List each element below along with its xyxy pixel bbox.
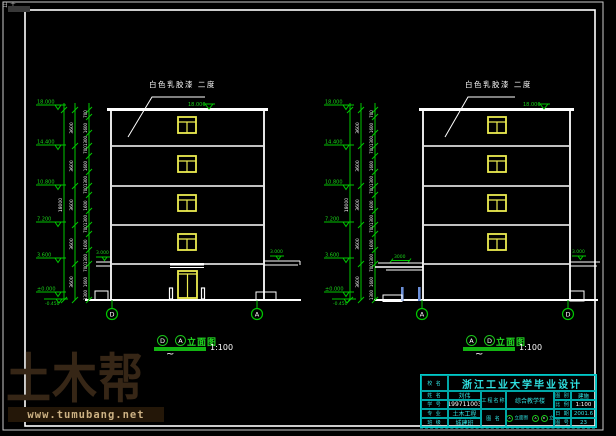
grid-letter: A <box>255 311 260 319</box>
dim-text: 1600 <box>369 200 374 211</box>
caption-right-elevation: A D 立面图 1:100 ~ <box>463 334 558 364</box>
caption-underline <box>463 347 515 351</box>
dim-text: 1300 <box>369 135 374 146</box>
level-triangle-icon <box>55 258 61 263</box>
level-triangle-icon <box>578 256 583 260</box>
paint-note-right: 白色乳胶漆 二度 <box>465 79 532 90</box>
titleblock-type-label: 图 别 <box>554 391 571 400</box>
dim-text: 1600 <box>369 160 374 171</box>
dim-text: 3600 <box>69 122 75 134</box>
annex-step <box>256 292 276 300</box>
titleblock-drawing-label: 图 名 <box>481 409 506 427</box>
dim-text: 1300 <box>83 289 88 300</box>
level-triangle-icon <box>55 105 61 110</box>
watermark-url-band: www.tumubang.net <box>8 407 164 422</box>
level-triangle-icon <box>55 222 61 227</box>
dim-text: 1300 <box>369 253 374 264</box>
grid-bubble-icon: A <box>506 415 513 422</box>
titleblock-drawing-value: D A 立面图 A D 立面图 <box>506 409 554 427</box>
dim-text: 1600 <box>369 122 374 133</box>
titleblock-school-label: 校 名 <box>421 375 448 391</box>
side-step <box>95 291 108 300</box>
titleblock-project-value: 综合教学楼 <box>506 391 554 409</box>
titleblock-id-label: 学 号 <box>421 400 448 409</box>
dim-text: 1300 <box>369 214 374 225</box>
dim-text: 1300 <box>83 214 88 225</box>
dim-text: 700 <box>369 225 374 233</box>
dim-text: 1600 <box>369 276 374 287</box>
caption-scale: 1:100 <box>210 343 233 352</box>
dim-text: 1600 <box>83 200 88 211</box>
dim-text: 700 <box>369 146 374 154</box>
titleblock-class-label: 班 级 <box>421 418 448 427</box>
level-triangle-icon <box>343 222 349 227</box>
door-post <box>202 288 205 299</box>
titleblock-date-value: 2001.6 <box>571 409 596 418</box>
dim-text: 3600 <box>69 238 75 250</box>
level-triangle-icon <box>102 257 107 261</box>
level-text: 3.000 <box>572 249 585 255</box>
dim-text: 1600 <box>83 122 88 133</box>
dim-text: 1300 <box>83 135 88 146</box>
grid-bubble-icon: D <box>541 415 548 422</box>
watermark-brand: 土木帮 <box>6 352 166 405</box>
level-triangle-icon <box>343 185 349 190</box>
titleblock-name-label: 姓 名 <box>421 391 448 400</box>
door-post <box>170 288 173 299</box>
titleblock-bottom-dashes <box>420 428 595 429</box>
dim-text: 3600 <box>355 199 361 211</box>
roof-slab <box>107 108 268 111</box>
cad-sheet: DA18.00014.40010.8007.2003.600±0.000-0.4… <box>0 0 616 436</box>
canopy-post <box>418 287 421 301</box>
titleblock-scale-value: 1:100 <box>571 400 596 409</box>
dim-text: 1300 <box>369 175 374 186</box>
dim-text: 700 <box>369 110 374 118</box>
roof-slab <box>419 108 574 111</box>
dim-text: 3600 <box>355 238 361 250</box>
titleblock-type-value: 建施 <box>571 391 596 400</box>
dim-text: 700 <box>83 186 88 194</box>
level-text: 3.000 <box>270 249 283 255</box>
level-triangle-icon <box>55 292 61 297</box>
caption-grid-bubble: A <box>466 335 477 346</box>
dim-text: 1600 <box>83 160 88 171</box>
caption-tilde: ~ <box>166 349 174 360</box>
level-triangle-icon <box>343 105 349 110</box>
titleblock-scale-label: 比 例 <box>554 400 571 409</box>
grid-letter: D <box>565 311 570 319</box>
caption-underline <box>154 347 206 351</box>
paint-note-left: 白色乳胶漆 二度 <box>149 79 216 90</box>
dim-text: 1600 <box>369 239 374 250</box>
titleblock-number-label: 图 号 <box>554 418 571 427</box>
grid-bubble-icon: A <box>532 415 539 422</box>
dim-text: 1300 <box>83 253 88 264</box>
titleblock-number-value: 23 <box>571 418 596 427</box>
caption-grid-bubble: D <box>157 335 168 346</box>
dim-text: 700 <box>83 146 88 154</box>
dim-text: 700 <box>369 186 374 194</box>
titleblock-project-label: 工程名称 <box>481 391 506 409</box>
titleblock-major-value: 土木工程 <box>448 409 481 418</box>
dim-text: 1600 <box>83 239 88 250</box>
caption-scale: 1:100 <box>519 343 542 352</box>
dim-text: 3600 <box>355 160 361 172</box>
grid-letter: D <box>109 311 114 319</box>
drawing-name-part: A D 立面图 <box>532 415 554 422</box>
dim-text: 3600 <box>355 122 361 134</box>
roof-level-text: 18.000 <box>188 102 206 108</box>
caption-tilde: ~ <box>475 349 483 360</box>
titleblock-id-value: 199711003 <box>448 400 481 409</box>
titleblock-title: 浙江工业大学毕业设计 <box>448 375 596 391</box>
dim-text: 3600 <box>355 276 361 288</box>
dim-text: 700 <box>83 225 88 233</box>
caption-grid-bubble: A <box>175 335 186 346</box>
level-text: -0.450 <box>333 301 348 307</box>
watermark: 土木帮 www.tumubang.net <box>6 352 166 397</box>
corner-smudge <box>8 6 30 12</box>
grid-letter: A <box>420 311 425 319</box>
dim-text: 700 <box>83 264 88 272</box>
level-triangle-icon <box>55 145 61 150</box>
dim-text: 1300 <box>369 289 374 300</box>
caption-left-elevation: D A 立面图 1:100 ~ <box>154 334 249 364</box>
titleblock-name-value: 刘伟 <box>448 391 481 400</box>
drawing-name-part: D A 立面图 <box>506 415 528 422</box>
dim-text: 3600 <box>69 276 75 288</box>
dim-text: 1600 <box>83 276 88 287</box>
watermark-url: www.tumubang.net <box>27 409 144 421</box>
dim-text: 1300 <box>83 175 88 186</box>
dim-text: 700 <box>369 264 374 272</box>
dim-text: 18000 <box>344 198 350 212</box>
title-block: 校 名 浙江工业大学毕业设计 姓 名 刘伟 学 号 199711003 专 业 … <box>420 374 597 428</box>
titleblock-class-value: 城建班 <box>448 418 481 427</box>
level-triangle-icon <box>343 258 349 263</box>
level-text: -0.450 <box>45 301 60 307</box>
titleblock-major-label: 专 业 <box>421 409 448 418</box>
level-triangle-icon <box>276 256 281 260</box>
dim-text: 700 <box>83 110 88 118</box>
level-text: 3.000 <box>96 250 109 256</box>
dim-text: 18000 <box>58 198 64 212</box>
titleblock-date-label: 日 期 <box>554 409 571 418</box>
level-triangle-icon <box>55 185 61 190</box>
roof-level-text: 18.000 <box>523 102 541 108</box>
dim-text: 3600 <box>69 160 75 172</box>
caption-grid-bubble: D <box>484 335 495 346</box>
entrance-canopy <box>170 263 204 266</box>
level-triangle-icon <box>343 292 349 297</box>
dim-text: 3000 <box>394 254 406 260</box>
dim-text: 3600 <box>69 199 75 211</box>
level-triangle-icon <box>343 145 349 150</box>
